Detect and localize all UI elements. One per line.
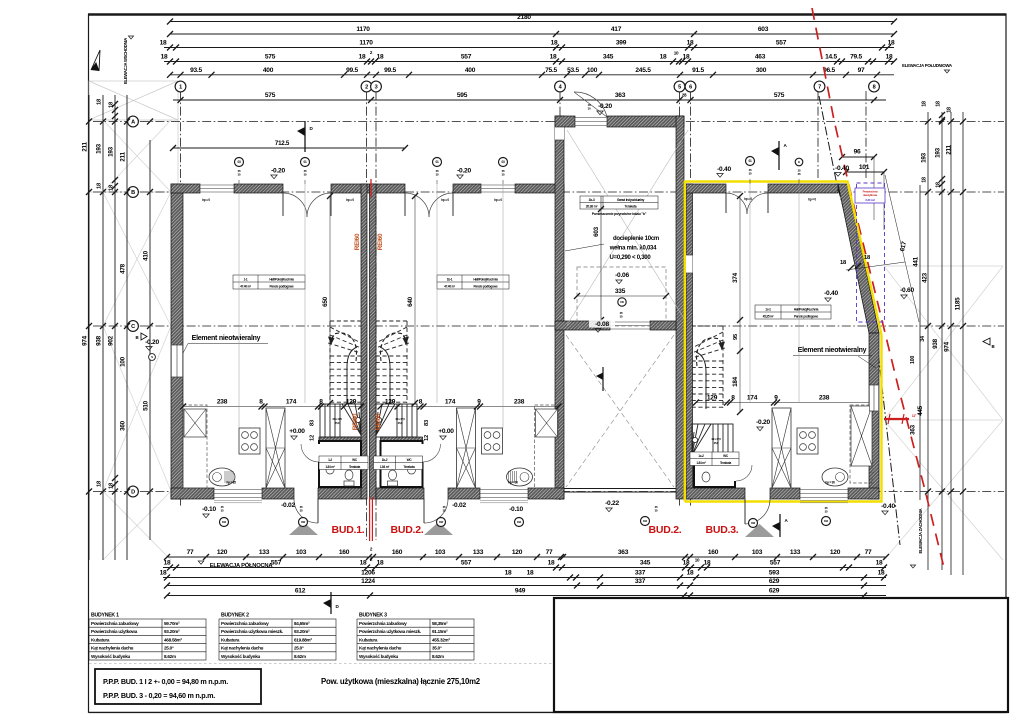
svg-text:3: 3 bbox=[375, 85, 378, 91]
svg-text:101: 101 bbox=[859, 164, 870, 171]
svg-text:238: 238 bbox=[819, 395, 830, 402]
svg-text:593: 593 bbox=[769, 570, 780, 577]
svg-text:8.62m: 8.62m bbox=[432, 654, 444, 659]
svg-text:557: 557 bbox=[271, 560, 282, 567]
svg-text:25,0: 25,0 bbox=[335, 421, 340, 425]
svg-text:P.P.P. BUD. 1 I 2 +- 0,00 =: P.P.P. BUD. 1 I 2 +- 0,00 = 94,80 m n.p.… bbox=[103, 677, 228, 686]
svg-text:174: 174 bbox=[445, 399, 456, 406]
svg-text:463: 463 bbox=[755, 54, 766, 61]
svg-text:1.84 m²: 1.84 m² bbox=[696, 461, 705, 465]
svg-text:-0.10: -0.10 bbox=[509, 506, 523, 513]
svg-text:BUD.2.: BUD.2. bbox=[649, 524, 682, 536]
svg-text:Powierzchnia użytkowa mieszk.: Powierzchnia użytkowa mieszk. bbox=[359, 629, 421, 634]
svg-text:Kubatura: Kubatura bbox=[221, 637, 240, 642]
svg-text:1: 1 bbox=[179, 85, 182, 91]
svg-text:58,35m²: 58,35m² bbox=[432, 621, 448, 626]
svg-text:120: 120 bbox=[830, 549, 841, 556]
svg-text:18: 18 bbox=[551, 40, 558, 47]
svg-text:18: 18 bbox=[840, 260, 847, 266]
svg-text:184: 184 bbox=[732, 376, 739, 387]
svg-text:363: 363 bbox=[910, 424, 917, 435]
svg-text:193: 193 bbox=[108, 146, 115, 157]
svg-text:18: 18 bbox=[947, 107, 953, 113]
svg-text:133: 133 bbox=[259, 549, 270, 556]
svg-text:12: 12 bbox=[424, 435, 430, 441]
svg-text:1c-2: 1c-2 bbox=[698, 454, 704, 458]
svg-text:01: 01 bbox=[303, 160, 307, 164]
svg-text:77: 77 bbox=[865, 549, 872, 556]
svg-text:445: 445 bbox=[917, 405, 924, 416]
svg-text:Hall/Pokój/Kuchnia: Hall/Pokój/Kuchnia bbox=[473, 277, 498, 281]
svg-text:95: 95 bbox=[733, 333, 739, 340]
svg-text:18: 18 bbox=[683, 54, 690, 61]
svg-text:8: 8 bbox=[319, 399, 323, 406]
svg-text:-0.02: -0.02 bbox=[281, 502, 295, 509]
svg-text:93.20m²: 93.20m² bbox=[164, 629, 180, 634]
svg-text:20.36 m²: 20.36 m² bbox=[586, 205, 599, 209]
svg-text:938: 938 bbox=[932, 338, 939, 349]
svg-text:400: 400 bbox=[263, 67, 274, 74]
svg-text:Panele podłogowe: Panele podłogowe bbox=[270, 284, 294, 288]
svg-text:Pow. użytkowa (mieszkalna) łą: Pow. użytkowa (mieszkalna) łącznie 275,1… bbox=[321, 677, 481, 686]
svg-text:18: 18 bbox=[936, 182, 942, 188]
svg-text:18: 18 bbox=[97, 182, 103, 189]
svg-text:Panele podłogowe: Panele podłogowe bbox=[794, 314, 818, 318]
svg-text:650: 650 bbox=[322, 296, 329, 307]
svg-text:-0.20: -0.20 bbox=[756, 419, 770, 426]
svg-text:59.70m²: 59.70m² bbox=[164, 621, 180, 626]
svg-text:Terakota: Terakota bbox=[349, 465, 361, 469]
svg-text:Powierzchnia zabudowy: Powierzchnia zabudowy bbox=[221, 621, 269, 626]
svg-text:18: 18 bbox=[109, 482, 115, 489]
svg-text:640: 640 bbox=[407, 296, 414, 307]
svg-text:619.88m³: 619.88m³ bbox=[294, 637, 312, 642]
svg-text:-0.22: -0.22 bbox=[605, 500, 619, 507]
svg-text:360: 360 bbox=[120, 420, 127, 431]
svg-text:6: 6 bbox=[689, 85, 692, 91]
svg-text:Kąt nachylenia dachu: Kąt nachylenia dachu bbox=[359, 646, 402, 651]
svg-text:Powierzchnia zabudowy: Powierzchnia zabudowy bbox=[91, 621, 139, 626]
svg-text:A: A bbox=[131, 120, 135, 126]
svg-text:77: 77 bbox=[187, 549, 194, 556]
svg-text:211: 211 bbox=[946, 145, 953, 155]
svg-text:100: 100 bbox=[120, 356, 127, 367]
svg-text:363: 363 bbox=[618, 549, 629, 556]
svg-text:Terakota: Terakota bbox=[720, 461, 732, 465]
svg-text:C: C bbox=[131, 324, 135, 330]
svg-text:-0.40: -0.40 bbox=[835, 165, 849, 172]
svg-text:557: 557 bbox=[776, 40, 787, 47]
svg-text:91.15m²: 91.15m² bbox=[432, 629, 448, 634]
svg-text:+0.00: +0.00 bbox=[289, 428, 305, 435]
svg-text:REI60: REI60 bbox=[375, 413, 382, 430]
svg-text:468.58m³: 468.58m³ bbox=[164, 637, 182, 642]
svg-text:603: 603 bbox=[758, 26, 769, 33]
svg-text:18: 18 bbox=[164, 560, 171, 567]
svg-text:174: 174 bbox=[286, 399, 297, 406]
svg-text:1.84 m²: 1.84 m² bbox=[380, 465, 389, 469]
svg-text:25,0: 25,0 bbox=[714, 441, 719, 445]
svg-text:2180: 2180 bbox=[517, 14, 531, 21]
svg-text:129: 129 bbox=[346, 399, 357, 406]
svg-text:Wysokość budynku: Wysokość budynku bbox=[221, 654, 260, 659]
svg-text:hp = 0: hp = 0 bbox=[441, 198, 449, 202]
svg-text:Powierzchnia użytkowa: Powierzchnia użytkowa bbox=[91, 629, 138, 634]
svg-text:18: 18 bbox=[922, 177, 928, 183]
svg-text:18: 18 bbox=[160, 40, 167, 47]
svg-text:100: 100 bbox=[910, 356, 916, 364]
svg-text:18: 18 bbox=[527, 570, 534, 577]
svg-text:8.62m: 8.62m bbox=[164, 654, 176, 659]
svg-text:Powierzchnia zabudowy: Powierzchnia zabudowy bbox=[359, 621, 407, 626]
svg-text:96: 96 bbox=[854, 149, 861, 156]
svg-text:133: 133 bbox=[790, 549, 801, 556]
svg-text:18: 18 bbox=[878, 570, 885, 577]
svg-text:Hall/Pokój/Kuchnia: Hall/Pokój/Kuchnia bbox=[269, 277, 294, 281]
svg-text:8: 8 bbox=[873, 85, 876, 91]
svg-text:160: 160 bbox=[392, 549, 403, 556]
svg-text:77: 77 bbox=[546, 549, 553, 556]
svg-text:18: 18 bbox=[876, 560, 883, 567]
svg-text:9: 9 bbox=[774, 395, 778, 402]
svg-text:14.5: 14.5 bbox=[825, 54, 837, 61]
svg-text:5: 5 bbox=[678, 85, 681, 91]
svg-text:603: 603 bbox=[593, 226, 600, 237]
svg-text:18: 18 bbox=[505, 570, 512, 577]
svg-text:47.40 m²: 47.40 m² bbox=[240, 284, 251, 288]
svg-text:441: 441 bbox=[913, 256, 920, 267]
svg-text:629: 629 bbox=[769, 588, 780, 595]
svg-text:hp = 0: hp = 0 bbox=[494, 198, 502, 202]
svg-text:7: 7 bbox=[818, 85, 821, 91]
svg-text:28: 28 bbox=[682, 93, 687, 98]
svg-text:BUDYNEK 2: BUDYNEK 2 bbox=[221, 613, 249, 619]
svg-text:712.5: 712.5 bbox=[275, 140, 290, 147]
svg-text:Terakota: Terakota bbox=[625, 205, 637, 209]
svg-text:-0.20: -0.20 bbox=[457, 168, 471, 175]
svg-text:Terakota: Terakota bbox=[403, 465, 415, 469]
svg-text:-0.08: -0.08 bbox=[595, 321, 609, 328]
svg-text:335: 335 bbox=[615, 288, 626, 295]
svg-text:8: 8 bbox=[259, 399, 263, 406]
svg-text:+0.00: +0.00 bbox=[438, 428, 454, 435]
svg-text:18: 18 bbox=[936, 101, 942, 107]
svg-text:8: 8 bbox=[731, 395, 735, 402]
svg-text:-0.40: -0.40 bbox=[717, 166, 731, 173]
svg-text:374: 374 bbox=[732, 272, 739, 283]
svg-text:-0.20: -0.20 bbox=[598, 103, 612, 110]
svg-text:1b-1: 1b-1 bbox=[447, 277, 453, 281]
svg-text:-0.20: -0.20 bbox=[145, 339, 159, 346]
svg-text:E: E bbox=[798, 160, 800, 164]
svg-text:8.62m: 8.62m bbox=[294, 654, 306, 659]
svg-text:193: 193 bbox=[935, 147, 942, 158]
svg-text:363: 363 bbox=[615, 92, 626, 99]
svg-text:120: 120 bbox=[217, 549, 228, 556]
svg-text:9: 9 bbox=[477, 399, 481, 406]
svg-text:18: 18 bbox=[888, 40, 895, 47]
svg-text:18: 18 bbox=[550, 54, 557, 61]
svg-text:hp = 90: hp = 90 bbox=[508, 481, 518, 485]
svg-text:99.5: 99.5 bbox=[346, 67, 358, 74]
svg-text:2,30 m2: 2,30 m2 bbox=[865, 198, 875, 202]
svg-text:510: 510 bbox=[143, 400, 150, 411]
svg-text:47.40 m²: 47.40 m² bbox=[444, 284, 455, 288]
svg-text:REI60: REI60 bbox=[352, 413, 359, 430]
svg-text:1.84 m²: 1.84 m² bbox=[325, 465, 334, 469]
svg-text:193: 193 bbox=[96, 143, 103, 154]
svg-text:BUD.2.: BUD.2. bbox=[391, 524, 424, 536]
svg-text:93.5: 93.5 bbox=[190, 67, 202, 74]
svg-text:103: 103 bbox=[752, 549, 763, 556]
svg-text:-0.40: -0.40 bbox=[881, 503, 895, 510]
svg-text:238: 238 bbox=[217, 399, 228, 406]
svg-text:P.P.P. BUD. 3 - 0,20 = 94,6: P.P.P. BUD. 3 - 0,20 = 94,60 m n.p.m. bbox=[103, 691, 215, 700]
svg-text:75.5: 75.5 bbox=[545, 67, 557, 74]
svg-text:2: 2 bbox=[365, 85, 368, 91]
svg-text:Element nieotwieralny: Element nieotwieralny bbox=[798, 347, 867, 354]
svg-text:1b-2: 1b-2 bbox=[382, 458, 388, 462]
svg-text:D6: D6 bbox=[620, 300, 624, 304]
svg-text:REI60: REI60 bbox=[377, 233, 384, 250]
svg-text:hp = 0: hp = 0 bbox=[346, 198, 354, 202]
svg-text:629: 629 bbox=[769, 578, 780, 585]
svg-text:hp = 85: hp = 85 bbox=[226, 481, 236, 485]
svg-text:01: 01 bbox=[748, 159, 752, 163]
svg-text:03: 03 bbox=[501, 160, 505, 164]
svg-text:211: 211 bbox=[82, 142, 89, 152]
svg-text:245.5: 245.5 bbox=[635, 67, 651, 74]
svg-text:18: 18 bbox=[160, 570, 167, 577]
svg-text:18: 18 bbox=[377, 54, 384, 61]
svg-text:455.32m³: 455.32m³ bbox=[432, 637, 450, 642]
svg-text:Kubatura: Kubatura bbox=[91, 637, 110, 642]
svg-text:1170: 1170 bbox=[359, 40, 373, 47]
svg-text:10: 10 bbox=[695, 558, 700, 563]
svg-text:hp = 90: hp = 90 bbox=[825, 481, 835, 485]
svg-text:ELEWACJA POŁUDNIOWA: ELEWACJA POŁUDNIOWA bbox=[902, 63, 952, 68]
svg-text:10: 10 bbox=[674, 51, 679, 56]
svg-text:1170: 1170 bbox=[356, 26, 370, 33]
svg-text:ELEWACJA WSCHODNIA: ELEWACJA WSCHODNIA bbox=[123, 38, 128, 84]
svg-text:18: 18 bbox=[109, 101, 115, 108]
svg-text:Kąt nachylenia dachu: Kąt nachylenia dachu bbox=[91, 646, 134, 651]
svg-text:1-2: 1-2 bbox=[328, 458, 332, 462]
svg-text:wełna min. λ0,034: wełna min. λ0,034 bbox=[609, 246, 657, 252]
svg-text:400: 400 bbox=[465, 67, 476, 74]
svg-text:974: 974 bbox=[944, 341, 951, 352]
svg-text:BUDYNEK 3: BUDYNEK 3 bbox=[359, 613, 387, 619]
svg-text:129: 129 bbox=[385, 399, 396, 406]
svg-text:902: 902 bbox=[108, 335, 115, 346]
svg-text:575: 575 bbox=[774, 92, 785, 99]
svg-text:133: 133 bbox=[473, 549, 484, 556]
svg-text:45,35 m²: 45,35 m² bbox=[763, 314, 774, 318]
svg-text:hp = 0: hp = 0 bbox=[202, 198, 210, 202]
svg-text:575: 575 bbox=[265, 54, 276, 61]
svg-text:129: 129 bbox=[707, 395, 718, 402]
svg-text:97: 97 bbox=[858, 67, 865, 74]
svg-text:938: 938 bbox=[96, 335, 103, 346]
svg-text:423: 423 bbox=[922, 272, 929, 283]
svg-text:160: 160 bbox=[339, 549, 350, 556]
svg-text:B: B bbox=[131, 190, 135, 196]
svg-text:557: 557 bbox=[461, 560, 472, 567]
svg-text:-0.60: -0.60 bbox=[900, 287, 914, 294]
svg-text:83: 83 bbox=[310, 419, 316, 426]
svg-text:-0.02: -0.02 bbox=[452, 502, 466, 509]
svg-text:U=0,290 < 0,300: U=0,290 < 0,300 bbox=[610, 255, 652, 261]
svg-text:34: 34 bbox=[920, 336, 926, 342]
svg-text:Panele podłogowe: Panele podłogowe bbox=[474, 284, 498, 288]
svg-text:docieplenie 10cm: docieplenie 10cm bbox=[613, 236, 659, 242]
svg-text:18: 18 bbox=[660, 54, 667, 61]
svg-text:91.5: 91.5 bbox=[692, 67, 704, 74]
svg-text:211: 211 bbox=[120, 152, 127, 162]
svg-text:557: 557 bbox=[461, 54, 472, 61]
svg-text:18: 18 bbox=[109, 184, 115, 191]
svg-text:BUDYNEK 1: BUDYNEK 1 bbox=[91, 613, 119, 619]
svg-text:Kubatura: Kubatura bbox=[359, 637, 378, 642]
svg-text:99.5: 99.5 bbox=[384, 67, 396, 74]
svg-text:345: 345 bbox=[640, 560, 651, 567]
svg-text:575: 575 bbox=[265, 92, 276, 99]
svg-text:193: 193 bbox=[921, 152, 928, 163]
svg-text:ELEWACJA ZACHODNIA: ELEWACJA ZACHODNIA bbox=[918, 508, 923, 553]
svg-text:BUD.3.: BUD.3. bbox=[706, 524, 739, 536]
svg-text:35.0°: 35.0° bbox=[432, 646, 442, 651]
svg-text:100: 100 bbox=[587, 67, 598, 74]
svg-text:1206: 1206 bbox=[361, 570, 375, 577]
svg-text:612: 612 bbox=[295, 588, 306, 595]
svg-text:160: 160 bbox=[708, 549, 719, 556]
svg-text:B: B bbox=[992, 344, 995, 349]
svg-text:337: 337 bbox=[635, 578, 646, 585]
svg-text:18: 18 bbox=[687, 40, 694, 47]
svg-text:Wysokość budynku: Wysokość budynku bbox=[359, 654, 398, 659]
svg-text:-0.40: -0.40 bbox=[824, 290, 838, 297]
svg-text:nieużytkowa: nieużytkowa bbox=[863, 193, 878, 197]
svg-text:Garaż Indywidualny: Garaż Indywidualny bbox=[617, 198, 645, 202]
svg-text:238: 238 bbox=[514, 399, 525, 406]
svg-text:18: 18 bbox=[864, 255, 871, 261]
svg-text:1b-3: 1b-3 bbox=[589, 198, 595, 202]
svg-text:18: 18 bbox=[360, 560, 367, 567]
svg-text:-0.06: -0.06 bbox=[615, 272, 629, 279]
svg-text:BUD.1.: BUD.1. bbox=[332, 524, 365, 536]
svg-text:174: 174 bbox=[747, 395, 758, 402]
svg-text:410: 410 bbox=[143, 250, 150, 261]
svg-text:18: 18 bbox=[97, 98, 103, 105]
svg-text:337: 337 bbox=[635, 570, 646, 577]
svg-text:Element nieotwieralny: Element nieotwieralny bbox=[192, 335, 261, 342]
svg-text:Pomieszczenie przynależne loka: Pomieszczenie przynależne lokalu ”b” bbox=[592, 212, 647, 216]
svg-text:949: 949 bbox=[515, 588, 526, 595]
svg-text:Wysokość budynku: Wysokość budynku bbox=[91, 654, 130, 659]
svg-text:595: 595 bbox=[457, 92, 468, 99]
svg-text:18: 18 bbox=[922, 101, 928, 107]
svg-text:01: 01 bbox=[435, 160, 439, 164]
svg-text:345: 345 bbox=[603, 54, 614, 61]
svg-text:hp = 0: hp = 0 bbox=[808, 198, 816, 202]
svg-text:1c-1: 1c-1 bbox=[765, 307, 771, 311]
svg-text:84,65m²: 84,65m² bbox=[294, 621, 310, 626]
svg-text:1224: 1224 bbox=[361, 578, 375, 585]
svg-text:399: 399 bbox=[616, 40, 627, 47]
svg-text:Kąt nachylenia dachu: Kąt nachylenia dachu bbox=[221, 646, 264, 651]
svg-text:974: 974 bbox=[82, 335, 89, 346]
svg-text:-0.10: -0.10 bbox=[202, 506, 216, 513]
svg-text:103: 103 bbox=[435, 549, 446, 556]
svg-text:8: 8 bbox=[419, 399, 423, 406]
svg-text:79.5: 79.5 bbox=[850, 54, 862, 61]
svg-text:300: 300 bbox=[756, 67, 767, 74]
svg-text:18: 18 bbox=[886, 54, 893, 61]
svg-text:B: B bbox=[136, 335, 139, 340]
svg-text:ELEWACJA PÓŁNOCNA: ELEWACJA PÓŁNOCNA bbox=[210, 561, 274, 569]
svg-text:03: 03 bbox=[237, 160, 241, 164]
svg-text:93.20m²: 93.20m² bbox=[294, 629, 310, 634]
svg-text:478: 478 bbox=[120, 263, 127, 274]
svg-text:12: 12 bbox=[310, 435, 316, 441]
svg-text:S: S bbox=[151, 355, 153, 359]
svg-text:18: 18 bbox=[97, 480, 103, 487]
svg-text:D: D bbox=[131, 490, 135, 496]
svg-text:25.0°: 25.0° bbox=[294, 646, 304, 651]
svg-text:Hall/Pokój/Kuchnia: Hall/Pokój/Kuchnia bbox=[794, 307, 819, 311]
svg-text:103: 103 bbox=[296, 549, 307, 556]
svg-text:REI60: REI60 bbox=[354, 233, 361, 250]
svg-text:25.0°: 25.0° bbox=[164, 646, 174, 651]
svg-text:120: 120 bbox=[512, 549, 523, 556]
svg-text:18: 18 bbox=[548, 560, 555, 567]
svg-text:417: 417 bbox=[611, 26, 622, 33]
svg-text:1-1: 1-1 bbox=[244, 277, 248, 281]
svg-text:Powierzchnia użytkowa mieszk.: Powierzchnia użytkowa mieszk. bbox=[221, 629, 283, 634]
svg-text:-0.20: -0.20 bbox=[271, 168, 285, 175]
svg-text:18: 18 bbox=[687, 570, 694, 577]
svg-text:83: 83 bbox=[424, 419, 430, 426]
svg-text:hp = 0: hp = 0 bbox=[744, 197, 752, 201]
svg-text:25,0: 25,0 bbox=[398, 421, 403, 425]
svg-text:557: 557 bbox=[770, 560, 781, 567]
svg-text:18: 18 bbox=[161, 54, 168, 61]
svg-text:18: 18 bbox=[359, 54, 366, 61]
svg-text:1185: 1185 bbox=[955, 297, 962, 310]
